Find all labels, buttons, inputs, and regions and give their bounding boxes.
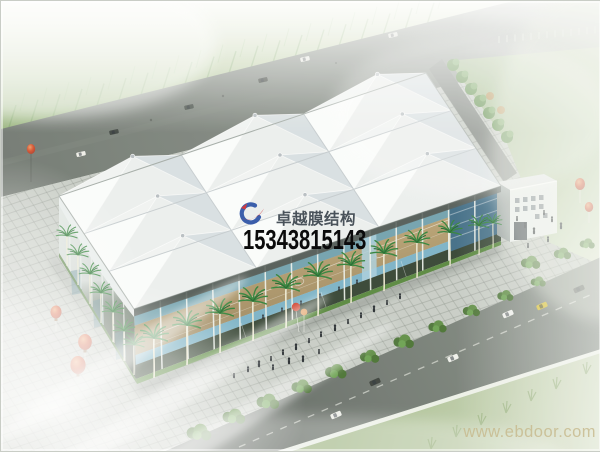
rendering-photo: 卓越膜结构 15343815143 www.ebdoor.com [0, 0, 600, 452]
ebdoor-watermark: www.ebdoor.com [463, 423, 596, 442]
mist-overlay [1, 1, 600, 451]
rendering-scene [1, 1, 600, 451]
